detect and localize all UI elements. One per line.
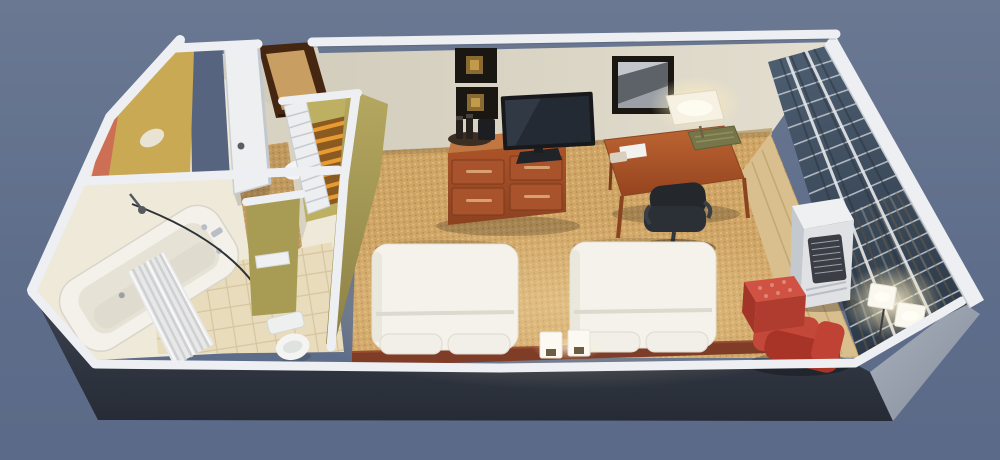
ac-grille (807, 234, 846, 284)
bedside-lamp-2 (568, 330, 590, 356)
wall-art-top (455, 48, 497, 83)
wall-art-bottom (456, 87, 498, 119)
coffee-maker (478, 119, 495, 140)
pillow (448, 334, 510, 354)
ottoman (742, 276, 806, 333)
bedside-lamp-1 (540, 332, 562, 358)
floorplan-svg (0, 0, 1000, 460)
bed-2 (570, 238, 716, 352)
bed-1 (372, 240, 518, 354)
door-handle (238, 143, 245, 150)
pillow (646, 332, 708, 352)
pillow (380, 334, 442, 354)
room-render (0, 0, 1000, 460)
